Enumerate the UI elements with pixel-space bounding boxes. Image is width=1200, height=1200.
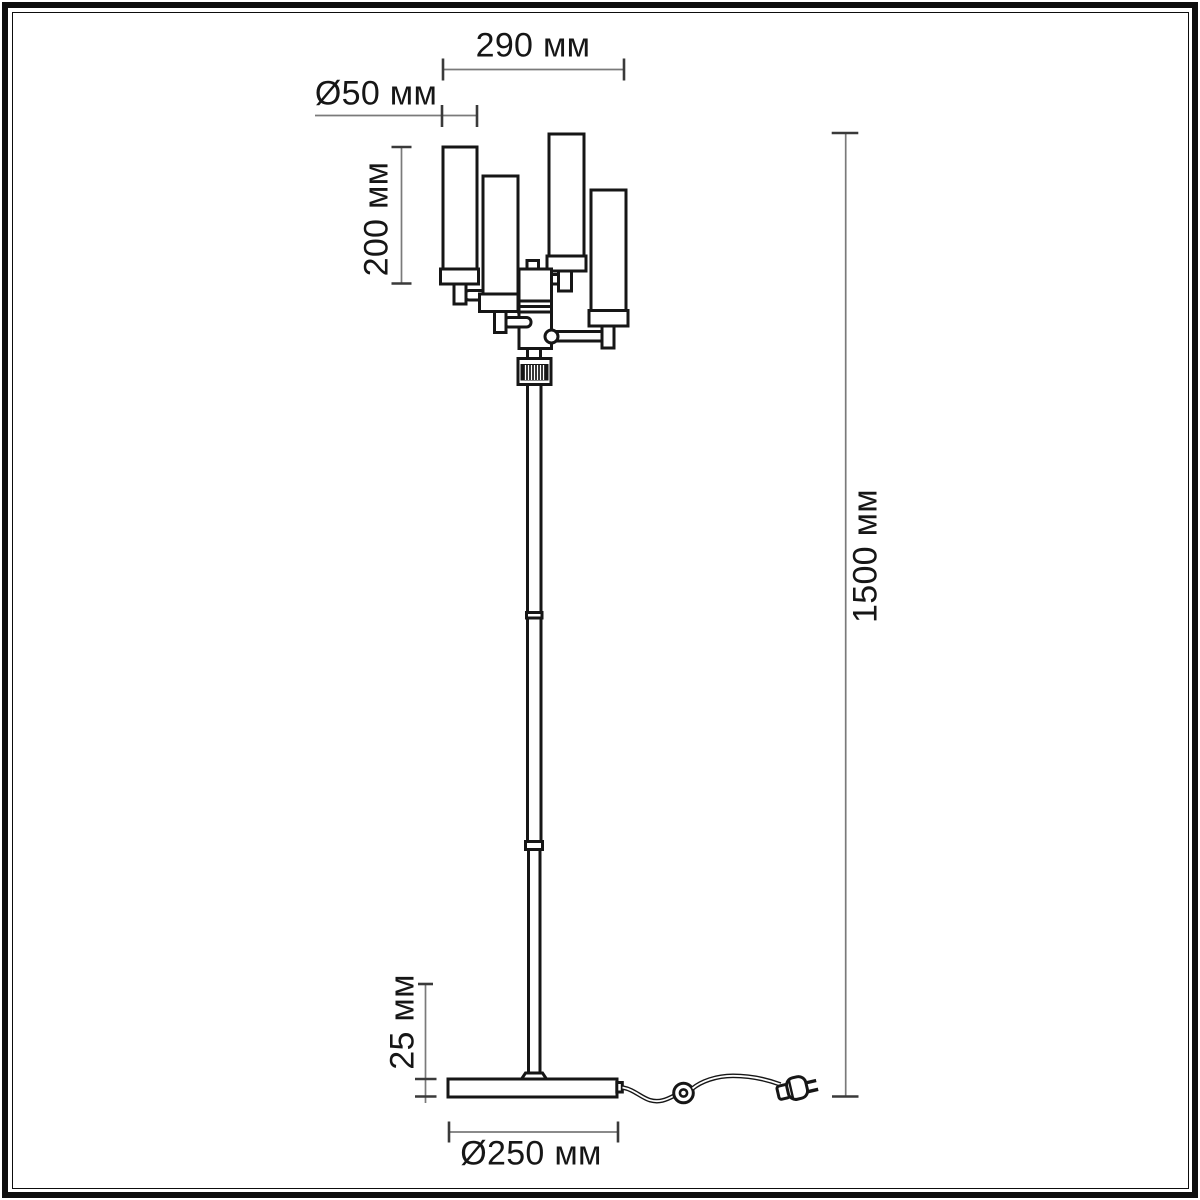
shade-1-cylinder bbox=[443, 147, 477, 269]
plug-prong-top bbox=[806, 1081, 816, 1083]
plug-prong-bottom bbox=[808, 1089, 818, 1091]
dim-label-shade-height: 200 мм bbox=[358, 162, 397, 277]
dim-label-total-height: 1500 мм bbox=[847, 489, 886, 623]
dim-label-head-width: 290 мм bbox=[476, 27, 591, 66]
shade-1-cap bbox=[441, 269, 479, 284]
lamp-dimension-drawing-page: { "dimensions": { "head_width": "290 мм"… bbox=[0, 0, 1200, 1200]
dim-label-base-thickness: 25 мм bbox=[384, 974, 423, 1070]
cord-bead-hole bbox=[680, 1089, 687, 1096]
shade-3 bbox=[545, 134, 586, 291]
shade-2-stem bbox=[495, 312, 507, 333]
shade-3-cylinder bbox=[549, 134, 584, 256]
power-plug bbox=[775, 1073, 819, 1103]
plug-body bbox=[785, 1075, 809, 1101]
lamp-pole bbox=[522, 385, 547, 1080]
shade-1-stem bbox=[454, 284, 466, 304]
shade-2-arm bbox=[504, 318, 531, 328]
knurled-adjuster bbox=[518, 359, 551, 385]
dim-label-base-diameter: Ø250 мм bbox=[460, 1135, 601, 1174]
shade-4-arm-pivot bbox=[545, 330, 558, 343]
shade-4-stem bbox=[602, 326, 614, 348]
pole-lower-segment bbox=[529, 850, 541, 1074]
shade-2-cap bbox=[480, 294, 519, 312]
dim-label-shade-diameter: Ø50 мм bbox=[315, 75, 437, 114]
power-cord bbox=[617, 1073, 819, 1103]
shade-2-cylinder bbox=[483, 176, 518, 294]
shade-4-cylinder bbox=[591, 190, 626, 311]
cord-exit-connector bbox=[617, 1083, 623, 1093]
shade-3-stem bbox=[559, 271, 572, 291]
shade-4-cap bbox=[589, 311, 628, 327]
floor-lamp-line-drawing bbox=[0, 0, 1200, 1200]
pole-joint-1 bbox=[527, 613, 543, 619]
lamp-base bbox=[448, 1079, 617, 1097]
